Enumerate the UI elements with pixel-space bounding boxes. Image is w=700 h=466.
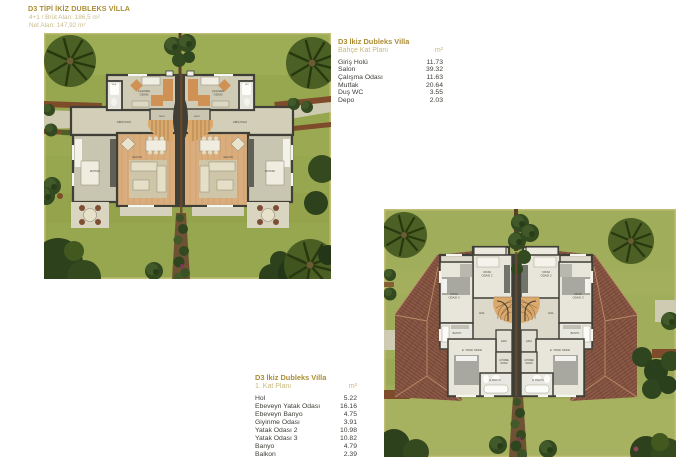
svg-text:ODASI: ODASI <box>500 362 508 365</box>
svg-text:DUŞ: DUŞ <box>112 84 117 86</box>
svg-text:ODASI: ODASI <box>214 92 223 96</box>
svg-text:SALON: SALON <box>223 155 232 159</box>
svg-text:GİYİNME: GİYİNME <box>524 359 534 362</box>
svg-text:HOL: HOL <box>548 311 554 315</box>
svg-text:ODASI 3: ODASI 3 <box>572 295 583 299</box>
svg-text:MUTFAK: MUTFAK <box>265 170 275 173</box>
svg-text:DEPO: DEPO <box>194 116 200 118</box>
svg-text:ÇAM.: ÇAM. <box>526 340 533 343</box>
svg-text:E. BANYO: E. BANYO <box>489 379 500 382</box>
svg-text:MUTFAK: MUTFAK <box>90 170 100 173</box>
svg-text:GİYİNME: GİYİNME <box>499 359 509 362</box>
svg-text:BANYO: BANYO <box>571 332 580 335</box>
svg-text:E. YATAK ODASI: E. YATAK ODASI <box>462 348 482 352</box>
svg-text:E. YATAK ODASI: E. YATAK ODASI <box>550 348 570 352</box>
svg-text:HOL: HOL <box>479 311 485 315</box>
svg-text:WC: WC <box>245 84 249 86</box>
svg-text:BANYO: BANYO <box>453 332 462 335</box>
svg-text:SALON: SALON <box>132 155 141 159</box>
svg-text:E. BANYO: E. BANYO <box>532 379 543 382</box>
svg-text:ODASI 3: ODASI 3 <box>448 295 459 299</box>
svg-text:DEPO: DEPO <box>159 116 165 118</box>
svg-text:ODASI: ODASI <box>140 92 149 96</box>
svg-text:ODASI 2: ODASI 2 <box>481 273 492 277</box>
svg-text:ÇAM.: ÇAM. <box>501 340 508 343</box>
svg-text:ODASI: ODASI <box>525 362 533 365</box>
svg-text:ODASI 2: ODASI 2 <box>540 273 551 277</box>
svg-text:GİRİŞ HOLÜ: GİRİŞ HOLÜ <box>233 121 248 124</box>
svg-text:GİRİŞ HOLÜ: GİRİŞ HOLÜ <box>117 121 132 124</box>
